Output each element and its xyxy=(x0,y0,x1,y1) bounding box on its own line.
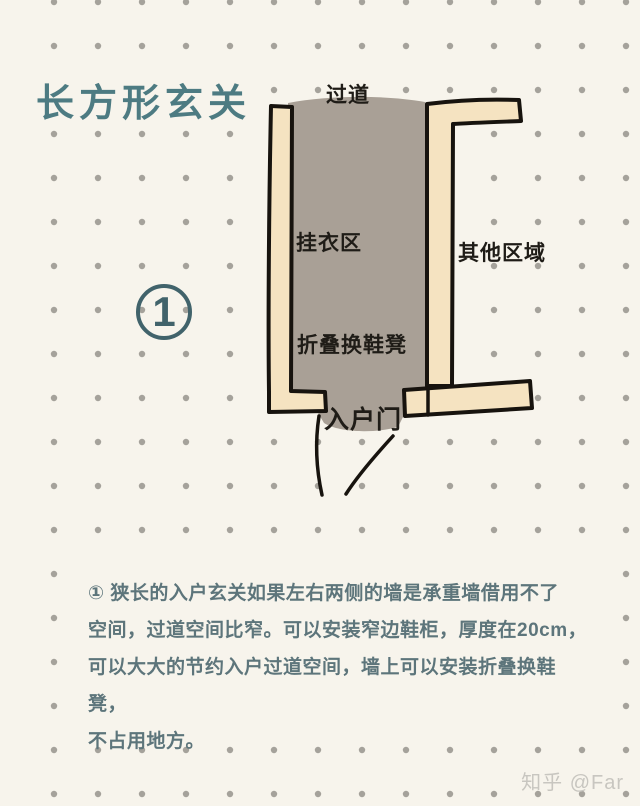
watermark: 知乎 @Far xyxy=(521,766,624,795)
background-dot xyxy=(403,527,409,533)
background-dot xyxy=(183,483,189,489)
background-dot xyxy=(403,0,409,5)
background-dot xyxy=(227,43,233,49)
description-paragraph: ① 狭长的入户玄关如果左右两侧的墙是承重墙借用不了 空间，过道空间比窄。可以安装… xyxy=(88,575,593,760)
background-dot xyxy=(271,43,277,49)
background-dot xyxy=(623,703,629,709)
background-dot xyxy=(51,747,57,753)
background-dot xyxy=(579,307,585,313)
entry-door-swing-arc xyxy=(346,436,393,494)
background-dot xyxy=(227,395,233,401)
background-dot xyxy=(227,263,233,269)
background-dot xyxy=(447,791,453,797)
background-dot xyxy=(227,0,233,5)
background-dot xyxy=(95,351,101,357)
background-dot xyxy=(535,527,541,533)
background-dot xyxy=(403,791,409,797)
background-dot xyxy=(579,483,585,489)
background-dot xyxy=(139,175,145,181)
background-dot xyxy=(95,527,101,533)
background-dot xyxy=(51,351,57,357)
background-dot xyxy=(535,43,541,49)
section-number: 1 xyxy=(152,288,175,336)
background-dot xyxy=(139,0,145,5)
background-dot xyxy=(623,43,629,49)
background-dot xyxy=(139,263,145,269)
background-dot xyxy=(95,263,101,269)
background-dot xyxy=(183,791,189,797)
background-dot xyxy=(51,571,57,577)
background-dot xyxy=(623,131,629,137)
background-dot xyxy=(95,43,101,49)
background-dot xyxy=(95,219,101,225)
background-dot xyxy=(623,747,629,753)
background-dot xyxy=(183,439,189,445)
label-hanging-area: 挂衣区 xyxy=(296,227,362,257)
background-dot xyxy=(95,483,101,489)
background-dot xyxy=(579,351,585,357)
background-dot xyxy=(227,351,233,357)
background-dot xyxy=(403,43,409,49)
background-dot xyxy=(271,0,277,5)
background-dot xyxy=(623,571,629,577)
background-dot xyxy=(623,263,629,269)
background-dot xyxy=(315,0,321,5)
background-dot xyxy=(579,527,585,533)
background-dot xyxy=(139,351,145,357)
background-dot xyxy=(95,0,101,5)
background-dot xyxy=(579,87,585,93)
background-dot xyxy=(95,307,101,313)
background-dot xyxy=(51,307,57,313)
background-dot xyxy=(623,483,629,489)
background-dot xyxy=(227,219,233,225)
background-dot xyxy=(51,175,57,181)
background-dot xyxy=(183,395,189,401)
background-dot xyxy=(315,527,321,533)
background-dot xyxy=(95,175,101,181)
background-dot xyxy=(447,527,453,533)
background-dot xyxy=(51,219,57,225)
background-dot xyxy=(139,395,145,401)
background-dot xyxy=(579,263,585,269)
floorplan-diagram xyxy=(250,70,560,510)
background-dot xyxy=(623,439,629,445)
background-dot xyxy=(579,395,585,401)
background-dot xyxy=(139,791,145,797)
background-dot xyxy=(535,0,541,5)
background-dot xyxy=(227,791,233,797)
background-dot xyxy=(51,791,57,797)
label-folding-stool: 折叠换鞋凳 xyxy=(297,329,407,359)
background-dot xyxy=(359,791,365,797)
background-dot xyxy=(95,131,101,137)
background-dot xyxy=(491,791,497,797)
background-dot xyxy=(579,219,585,225)
background-dot xyxy=(183,263,189,269)
background-dot xyxy=(227,307,233,313)
background-dot xyxy=(623,0,629,5)
background-dot xyxy=(51,659,57,665)
infographic-page: 长方形玄关 1 过道 挂衣区 其他区域 折叠换鞋凳 入户门 ① 狭长的入户玄关如… xyxy=(0,0,640,806)
background-dot xyxy=(227,439,233,445)
background-dot xyxy=(623,527,629,533)
background-dot xyxy=(139,527,145,533)
background-dot xyxy=(51,395,57,401)
background-dot xyxy=(139,439,145,445)
background-dot xyxy=(447,43,453,49)
background-dot xyxy=(51,263,57,269)
background-dot xyxy=(579,0,585,5)
background-dot xyxy=(359,43,365,49)
background-dot xyxy=(227,175,233,181)
background-dot xyxy=(183,0,189,5)
background-dot xyxy=(579,175,585,181)
background-dot xyxy=(95,791,101,797)
background-dot xyxy=(623,351,629,357)
background-dot xyxy=(623,395,629,401)
background-dot xyxy=(183,43,189,49)
background-dot xyxy=(623,659,629,665)
background-dot xyxy=(139,219,145,225)
background-dot xyxy=(315,791,321,797)
background-dot xyxy=(95,395,101,401)
background-dot xyxy=(183,351,189,357)
page-title: 长方形玄关 xyxy=(36,72,251,127)
background-dot xyxy=(623,175,629,181)
section-number-badge: 1 xyxy=(136,284,192,340)
background-dot xyxy=(227,483,233,489)
corridor-floor-area xyxy=(288,97,425,431)
background-dot xyxy=(51,483,57,489)
background-dot xyxy=(623,87,629,93)
entry-door-leaf xyxy=(317,416,322,495)
background-dot xyxy=(491,0,497,5)
background-dot xyxy=(51,439,57,445)
background-dot xyxy=(491,43,497,49)
background-dot xyxy=(359,527,365,533)
background-dot xyxy=(95,439,101,445)
background-dot xyxy=(139,483,145,489)
background-dot xyxy=(623,615,629,621)
background-dot xyxy=(271,527,277,533)
background-dot xyxy=(183,131,189,137)
background-dot xyxy=(227,527,233,533)
background-dot xyxy=(359,0,365,5)
background-dot xyxy=(447,0,453,5)
label-other-area: 其他区域 xyxy=(458,237,546,267)
background-dot xyxy=(183,219,189,225)
label-corridor: 过道 xyxy=(326,79,370,109)
background-dot xyxy=(51,615,57,621)
background-dot xyxy=(579,131,585,137)
background-dot xyxy=(183,527,189,533)
background-dot xyxy=(51,0,57,5)
background-dot xyxy=(271,791,277,797)
background-dot xyxy=(51,131,57,137)
background-dot xyxy=(623,307,629,313)
background-dot xyxy=(139,131,145,137)
background-dot xyxy=(51,527,57,533)
background-dot xyxy=(623,219,629,225)
label-entry-door: 入户门 xyxy=(324,400,402,436)
background-dot xyxy=(139,43,145,49)
background-dot xyxy=(491,527,497,533)
background-dot xyxy=(579,43,585,49)
background-dot xyxy=(51,43,57,49)
background-dot xyxy=(51,703,57,709)
background-dot xyxy=(315,43,321,49)
background-dot xyxy=(183,175,189,181)
background-dot xyxy=(579,439,585,445)
background-dot xyxy=(227,131,233,137)
